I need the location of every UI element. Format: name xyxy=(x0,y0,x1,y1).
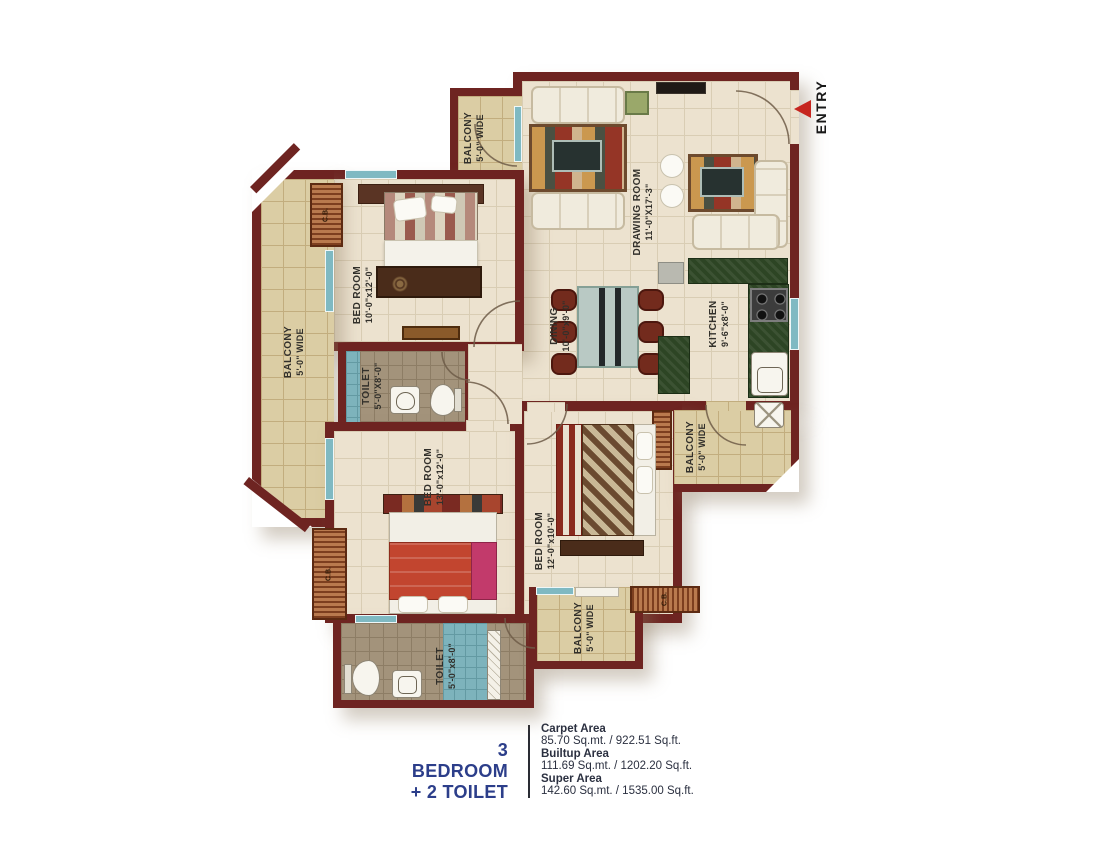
sofa-1 xyxy=(531,86,625,124)
sofa-2 xyxy=(531,192,625,230)
label-bedroom-3: BED ROOM 12'-0"x10'-0" xyxy=(534,512,556,570)
door-gap-balcony-bottom xyxy=(575,587,619,597)
carpet-area-value: 85.70 Sq.mt. / 922.51 Sq.ft. xyxy=(541,735,694,747)
cupboard-label: C.B. xyxy=(326,567,333,581)
entry-label: ENTRY xyxy=(813,80,829,134)
pouf-1 xyxy=(660,154,684,178)
tv-unit xyxy=(656,82,706,94)
coffee-table-1 xyxy=(552,140,602,172)
sink-bowl xyxy=(396,392,415,410)
label-dining: DINING 10'-0"x9'-0" xyxy=(549,300,571,351)
door-gap-bedroom-3 xyxy=(527,402,565,412)
label-bedroom-1: BED ROOM 10'-0"x12'-0" xyxy=(352,266,374,324)
window-balcony-top xyxy=(514,106,522,162)
toilet2-cistern xyxy=(344,664,352,694)
wash-basin xyxy=(754,402,784,428)
label-balcony-bottom: BALCONY 5'-0" WIDE xyxy=(573,602,595,654)
dining-chair xyxy=(551,353,577,375)
bed1-rug xyxy=(376,266,482,298)
kitchen-counter-top xyxy=(688,258,788,284)
floor-plan-canvas: C.B. C.B. C.B. BALCONY 5'-0" WIDE DRAWIN… xyxy=(0,0,1103,866)
kitchen-sink xyxy=(751,352,788,396)
label-kitchen: KITCHEN 9'-6"x8'-0" xyxy=(708,300,730,347)
toilet2-sink xyxy=(392,670,422,698)
room-balcony-top xyxy=(450,88,522,178)
door-gap-balcony-right xyxy=(706,401,746,411)
window-kitchen-right xyxy=(790,298,799,350)
sink-bowl xyxy=(757,367,783,393)
cupboard-label: C.B. xyxy=(662,592,669,606)
label-drawing-room: DRAWING ROOM 11'-0"X17'-3" xyxy=(632,168,654,255)
toilet1-blue-tiles xyxy=(346,351,360,422)
window-bedroom-1-top xyxy=(345,170,397,179)
window-toilet-2 xyxy=(355,615,397,623)
wall-chamfer-balcony-right xyxy=(766,459,799,492)
label-balcony-top: BALCONY 5'-0" WIDE xyxy=(463,112,485,164)
bed2-pillow xyxy=(438,596,468,613)
window-balcony-bottom xyxy=(536,587,574,595)
bed3-rug xyxy=(560,540,644,556)
stove xyxy=(750,288,788,322)
bed1-dresser xyxy=(402,326,460,340)
area-summary: Carpet Area 85.70 Sq.mt. / 922.51 Sq.ft.… xyxy=(541,723,694,797)
label-toilet-2: TOILET 5'-0"x8'-0" xyxy=(435,643,457,689)
bed3-pillow xyxy=(636,466,653,494)
pouf-2 xyxy=(660,184,684,208)
cupboard-label: C.B. xyxy=(323,208,330,222)
sink-bowl xyxy=(398,676,417,694)
kitchen-appliance xyxy=(658,262,684,284)
coffee-table-2 xyxy=(700,167,744,197)
bed2-pillow xyxy=(398,596,428,613)
toilet1-sink xyxy=(390,386,420,414)
bed2-blanket-accent xyxy=(471,542,497,600)
bed3-blanket xyxy=(582,424,634,536)
toilet2-wc xyxy=(352,660,380,696)
bed3-runner xyxy=(556,424,582,536)
carpet-area-label: Carpet Area xyxy=(541,723,694,735)
bed1-pillow xyxy=(393,196,428,222)
toilet1-wc xyxy=(430,384,456,416)
entry-arrow-icon xyxy=(794,100,811,118)
builtup-area-label: Builtup Area xyxy=(541,748,694,760)
super-area-value: 142.60 Sq.mt. / 1535.00 Sq.ft. xyxy=(541,785,694,797)
summary-divider xyxy=(528,725,530,798)
bed3-pillow xyxy=(636,432,653,460)
door-gap-bedroom-2 xyxy=(466,420,510,431)
toilet1-cistern xyxy=(454,388,462,412)
kitchen-island xyxy=(658,336,690,394)
bed1-pillow xyxy=(430,195,458,215)
plan-title: 3 BEDROOM + 2 TOILET xyxy=(398,740,508,803)
dining-table xyxy=(577,286,639,368)
label-balcony-right: BALCONY 5'-0" WIDE xyxy=(685,421,707,473)
sofa-4 xyxy=(692,214,780,250)
builtup-area-value: 111.69 Sq.mt. / 1202.20 Sq.ft. xyxy=(541,760,694,772)
plan-title-line2: + 2 TOILET xyxy=(398,782,508,803)
super-area-label: Super Area xyxy=(541,773,694,785)
label-balcony-left: BALCONY 5'-0" WIDE xyxy=(283,326,305,378)
label-toilet-1: TOILET 5'-0"X8'-0" xyxy=(361,362,383,409)
hallway-floor xyxy=(468,344,522,424)
plan-title-line1: 3 BEDROOM xyxy=(398,740,508,782)
dining-chair xyxy=(638,289,664,311)
window-bedroom-2-left xyxy=(325,438,334,500)
side-table xyxy=(625,91,649,115)
label-bedroom-2: BED ROOM 13'-0"x12'-0" xyxy=(423,448,445,506)
window-bedroom-1-left xyxy=(325,250,334,312)
toilet2-shower-door xyxy=(487,630,501,700)
